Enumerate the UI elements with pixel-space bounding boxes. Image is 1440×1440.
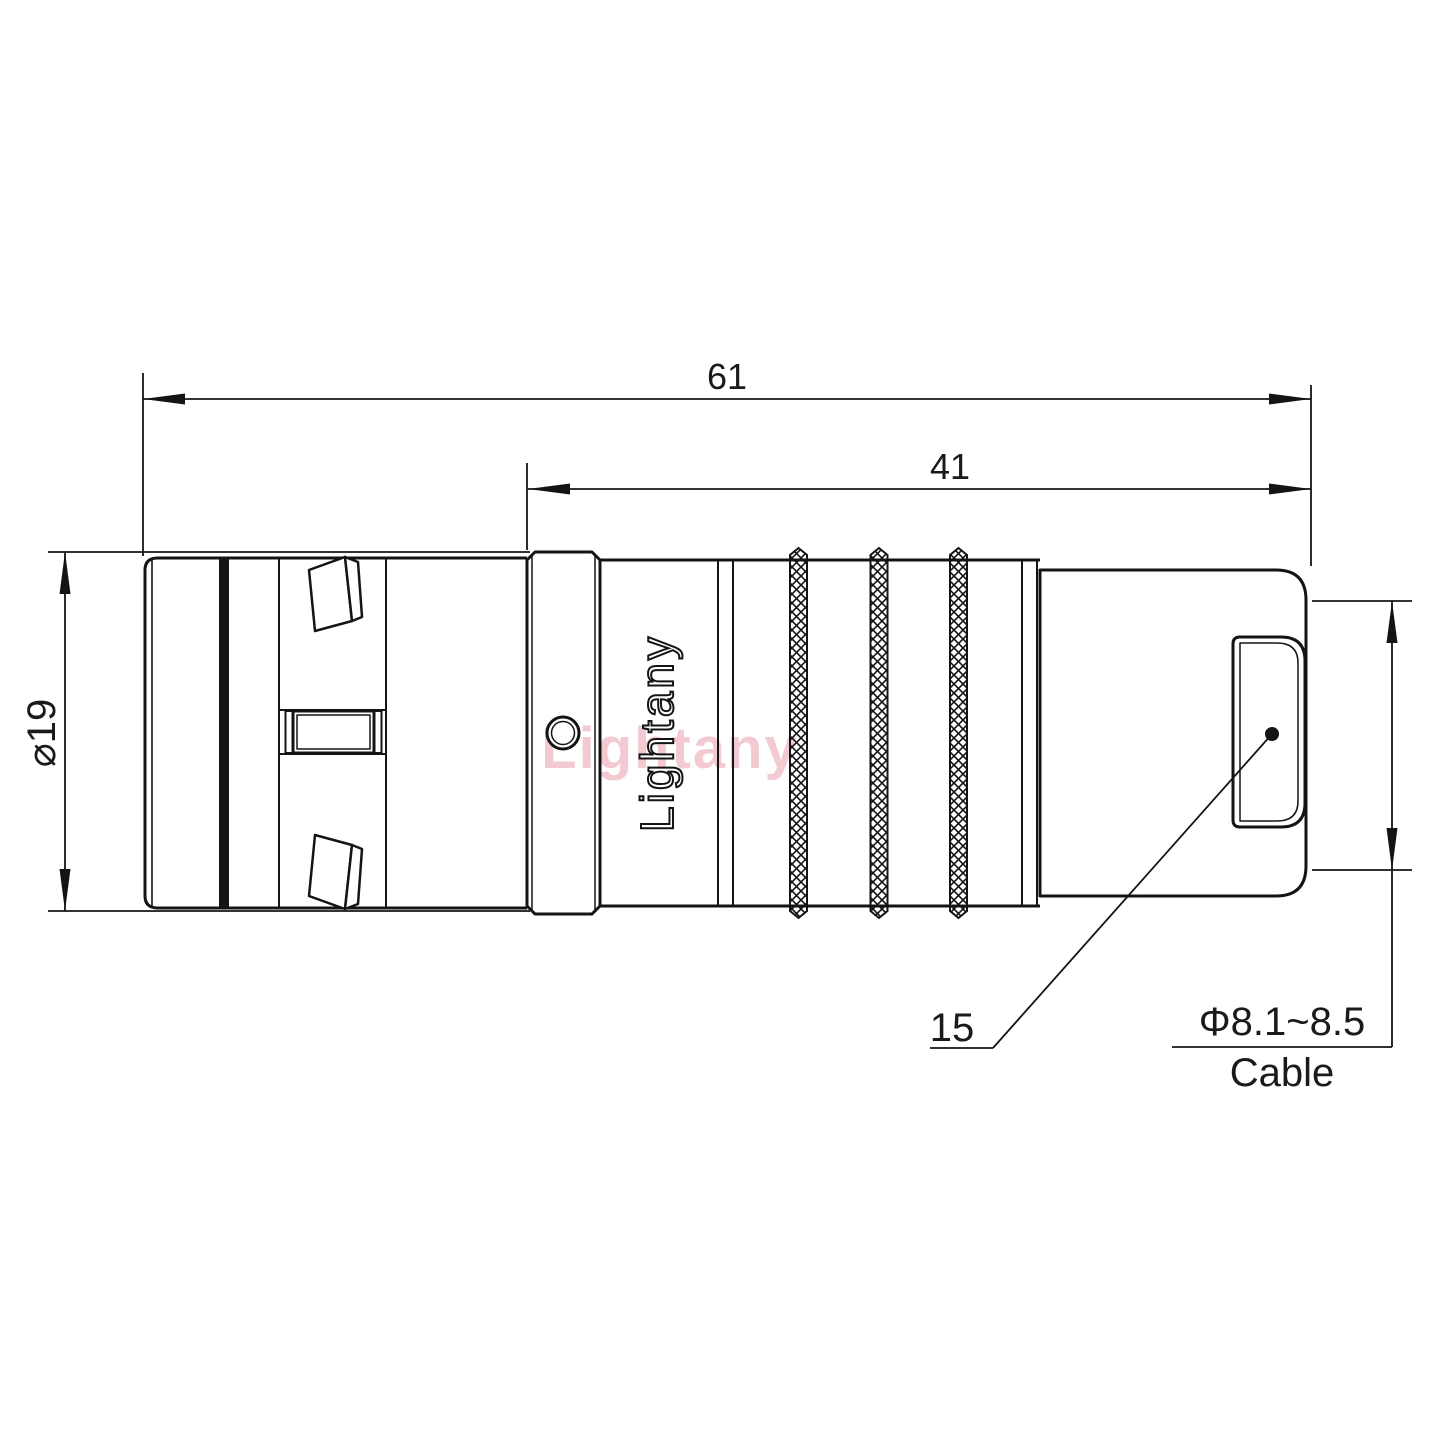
drawing-canvas: Lightany bbox=[0, 0, 1440, 1440]
knurl-band-2 bbox=[871, 548, 888, 918]
knurl-band-3 bbox=[950, 548, 967, 918]
keyway-bottom bbox=[309, 835, 362, 909]
keyway-top bbox=[309, 557, 362, 631]
dim-front-diameter-label: ⌀19 bbox=[20, 699, 64, 768]
dim-overall-length-label: 61 bbox=[707, 356, 747, 397]
dim-cable-range-label: Φ8.1~8.5 bbox=[1199, 1000, 1365, 1044]
latch-slot bbox=[279, 710, 386, 754]
dim-boot-length-label: 15 bbox=[930, 1006, 975, 1050]
dim-rear-length-label: 41 bbox=[930, 446, 970, 487]
cable-word-label: Cable bbox=[1230, 1051, 1335, 1095]
engraving-text: Lightany bbox=[631, 634, 683, 832]
black-band bbox=[219, 559, 229, 907]
latch-block-outer bbox=[293, 711, 374, 753]
connector-technical-drawing: Lightany bbox=[0, 0, 1440, 1440]
knurl-band-1 bbox=[790, 548, 807, 918]
